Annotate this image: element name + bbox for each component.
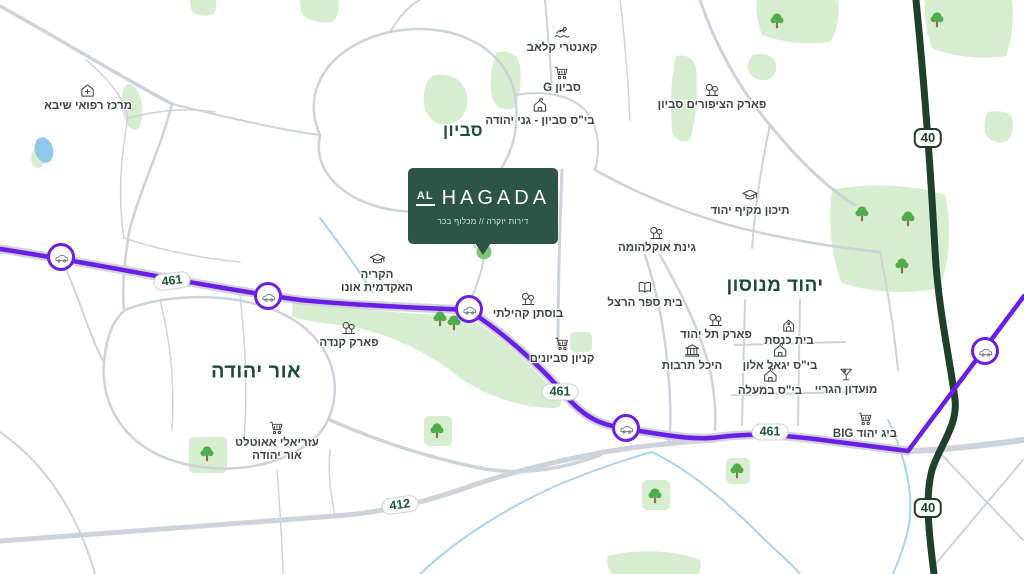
brand-logo-name: HAGADA (442, 187, 550, 210)
brand-callout-pointer (475, 243, 491, 255)
brand-tagline: דירות יוקרה // מכלוף בכר (437, 217, 528, 226)
brand-logo: AL HAGADA (416, 187, 550, 210)
brand-logo-prefix: AL (416, 190, 435, 206)
promotional-area-map: מרכז רפואי שיבאקאנטרי קלאבסביון Gבי"ס סב… (0, 0, 1024, 574)
map-canvas (0, 0, 1024, 574)
brand-callout: AL HAGADA דירות יוקרה // מכלוף בכר (408, 168, 558, 244)
green-areas (31, 0, 1013, 574)
